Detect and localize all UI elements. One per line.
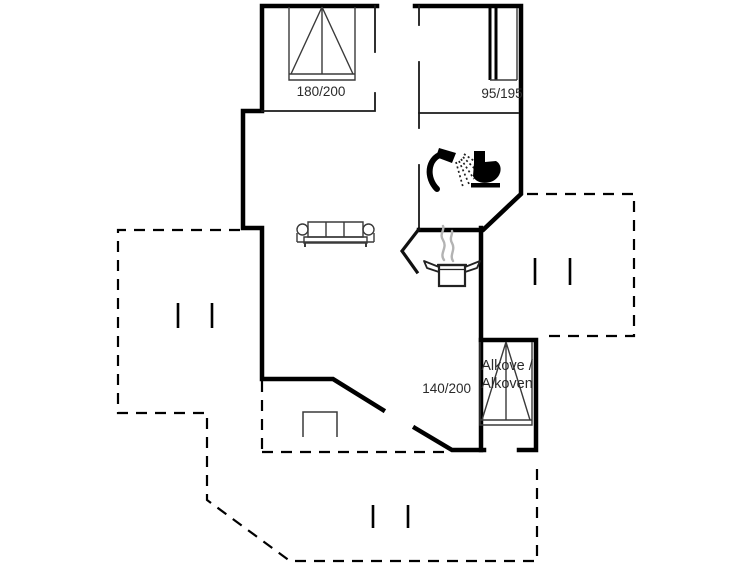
alcove-bed-size-label: 140/200	[422, 381, 471, 396]
terrace-right	[527, 194, 634, 336]
kitchen-corner-wall	[402, 229, 419, 272]
double-bed-size-label: 180/200	[297, 84, 346, 99]
terrace-marks	[178, 258, 570, 528]
wall-south-diagonal	[415, 428, 484, 450]
entry-step	[303, 412, 337, 437]
floor-plan-canvas: 180/200 95/195 140/200 Alkove / Alkoven	[0, 0, 755, 566]
floor-plan-page: 180/200 95/195 140/200 Alkove / Alkoven	[0, 0, 755, 566]
toilet-icon	[471, 151, 501, 188]
bunk-bed-icon	[490, 8, 517, 80]
alcove-name-line2: Alkoven	[481, 376, 533, 392]
wall-east-facade	[415, 6, 521, 230]
alcove-name-line1: Alkove /	[481, 358, 534, 374]
wall-west-facade	[243, 6, 383, 410]
shower-icon	[430, 148, 480, 189]
cooking-pot-icon	[424, 226, 480, 286]
double-bed-icon	[289, 7, 355, 80]
sofa-icon	[297, 222, 374, 247]
interior-walls	[262, 6, 518, 228]
terrace-left-and-bottom	[118, 230, 537, 561]
bunk-bed-size-label: 95/195	[481, 86, 522, 101]
terrace-outline	[118, 194, 634, 561]
